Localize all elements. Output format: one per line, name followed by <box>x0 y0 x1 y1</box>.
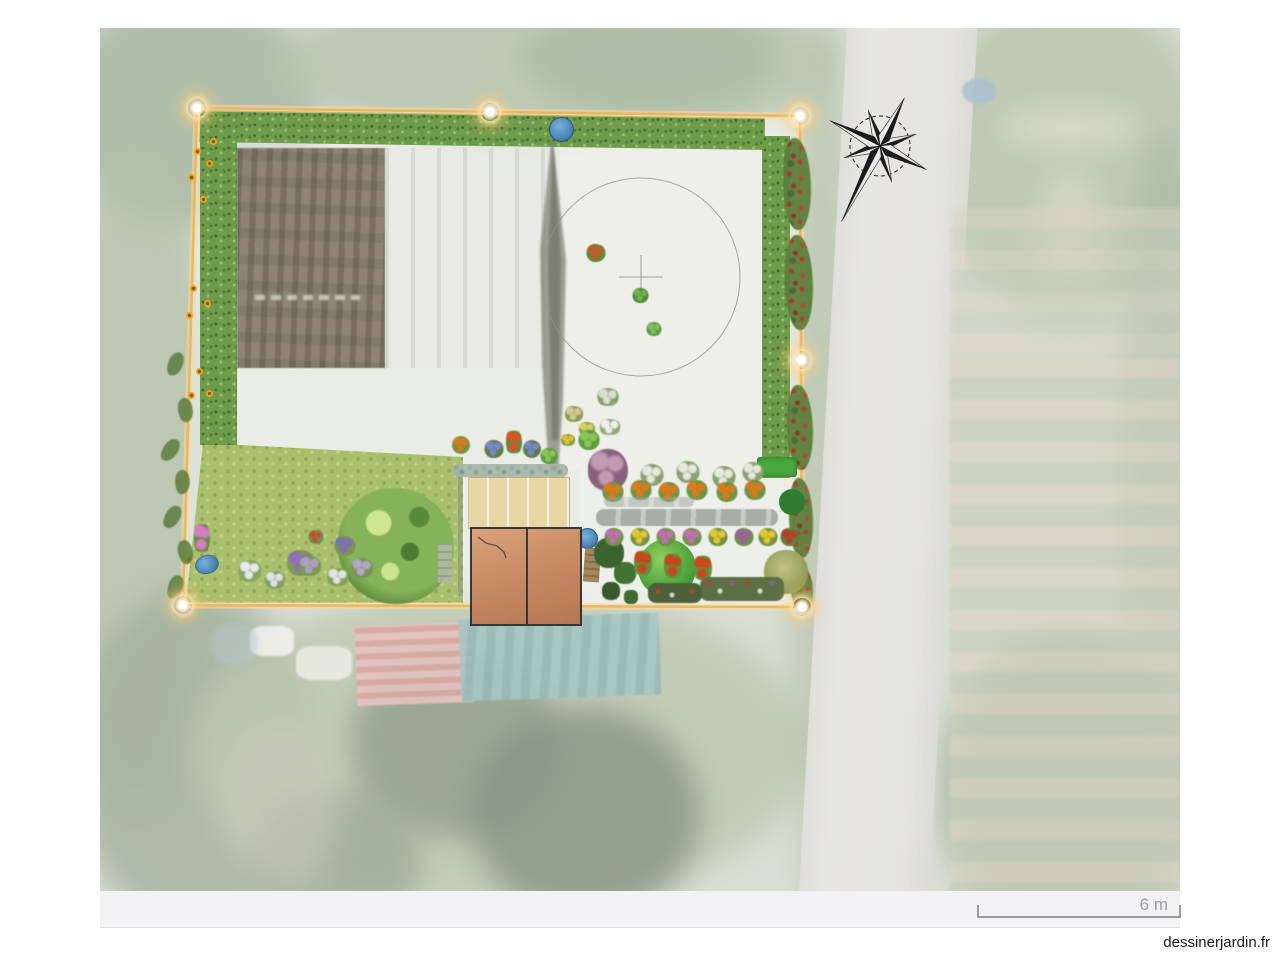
aerial-texture-blob <box>220 718 340 888</box>
flower-clump[interactable] <box>194 520 210 556</box>
water-tank-icon[interactable] <box>549 117 574 142</box>
corner-marker-icon[interactable] <box>792 351 810 369</box>
shrub[interactable] <box>632 288 649 303</box>
gravel-area[interactable] <box>560 145 763 470</box>
aerial-texture-blob <box>100 588 320 927</box>
round-bush[interactable] <box>779 489 805 515</box>
flower-pot[interactable] <box>452 436 470 454</box>
sunflower-icon <box>204 300 211 307</box>
flower-clump[interactable] <box>308 530 324 544</box>
tilled-soil-plot[interactable] <box>237 148 385 368</box>
aerial-texture-blob <box>1000 108 1140 148</box>
flower-clump[interactable] <box>634 548 652 578</box>
soil-row-marks <box>255 295 360 300</box>
watermark-text: dessinerjardin.fr <box>1163 934 1270 951</box>
flower-clump[interactable] <box>350 558 374 578</box>
corner-marker-icon[interactable] <box>793 598 811 616</box>
flower-clump[interactable] <box>326 568 350 586</box>
stone-border <box>604 497 694 507</box>
sunflower-icon <box>210 138 217 145</box>
sunflower-icon <box>206 160 213 167</box>
flower-clump[interactable] <box>734 528 754 546</box>
aerial-texture-blob <box>190 588 810 908</box>
shrub[interactable] <box>646 322 662 336</box>
sunflower-icon <box>186 312 193 319</box>
flower-clump[interactable] <box>298 556 322 576</box>
house-roof-pink <box>355 622 474 706</box>
light-plot[interactable] <box>385 148 560 368</box>
aerial-texture-blob <box>470 708 700 918</box>
flower-pot[interactable] <box>484 440 504 458</box>
road <box>796 28 978 927</box>
flower-clump[interactable] <box>264 571 286 589</box>
flower-pot[interactable] <box>506 428 522 456</box>
flower-clump[interactable] <box>598 419 622 435</box>
sunflower-icon <box>196 368 203 375</box>
flower-clump[interactable] <box>682 528 702 546</box>
aerial-texture-blob <box>930 28 1180 318</box>
corner-marker-icon[interactable] <box>791 107 809 125</box>
flower-clump[interactable] <box>596 388 620 406</box>
aerial-texture-blob <box>520 28 780 118</box>
mixed-flower-bed[interactable] <box>700 577 784 601</box>
shrub[interactable] <box>560 434 576 446</box>
retaining-wall <box>458 468 462 596</box>
scale-label: 6 m <box>1128 895 1168 915</box>
corner-marker-icon[interactable] <box>481 103 499 121</box>
shrub[interactable] <box>564 406 584 422</box>
shed-photo <box>250 626 294 656</box>
lavender-border[interactable] <box>452 464 568 477</box>
aerial-texture-blob <box>1040 168 1100 288</box>
aerial-texture-blob <box>350 648 560 838</box>
flower-clump[interactable] <box>716 482 738 502</box>
shed-photo <box>296 646 352 680</box>
sunflower-icon <box>200 196 207 203</box>
sunflower-icon <box>188 174 195 181</box>
allotment-rows <box>950 358 1180 927</box>
aerial-texture-blob <box>1120 128 1180 828</box>
garden-shed-roof[interactable] <box>470 527 582 626</box>
scale-footer-bar <box>100 891 1180 928</box>
flower-pot[interactable] <box>523 440 541 458</box>
stone-border[interactable] <box>596 509 778 526</box>
flower-clump[interactable] <box>780 528 800 546</box>
sunflower-icon <box>188 392 195 399</box>
flower-clump[interactable] <box>742 462 764 482</box>
corner-marker-icon[interactable] <box>188 99 206 117</box>
flower-clump[interactable] <box>664 551 682 581</box>
flower-clump[interactable] <box>708 528 728 546</box>
flower-clump[interactable] <box>586 244 606 262</box>
garden-plan-canvas: 6 m dessinerjardin.fr <box>0 0 1280 960</box>
sunflower-icon <box>194 148 201 155</box>
mixed-flower-bed[interactable] <box>648 583 702 603</box>
sunflower-icon <box>190 285 197 292</box>
shrub[interactable] <box>578 430 600 450</box>
flower-clump[interactable] <box>238 560 262 582</box>
aerial-texture-blob <box>940 628 1180 927</box>
wooden-deck[interactable] <box>468 477 570 529</box>
sunflower-icon <box>206 390 213 397</box>
flower-clump[interactable] <box>630 528 650 546</box>
corner-marker-icon[interactable] <box>174 596 192 614</box>
shrub[interactable] <box>540 448 558 464</box>
allotment-rows <box>950 208 1180 358</box>
flower-clump[interactable] <box>744 480 766 500</box>
garden-steps[interactable] <box>438 543 452 583</box>
flower-clump[interactable] <box>656 528 676 546</box>
flower-clump[interactable] <box>334 536 356 556</box>
pond-photo <box>962 78 996 104</box>
flower-clump[interactable] <box>758 528 778 546</box>
pool-photo <box>212 624 258 664</box>
flower-clump[interactable] <box>604 528 624 546</box>
